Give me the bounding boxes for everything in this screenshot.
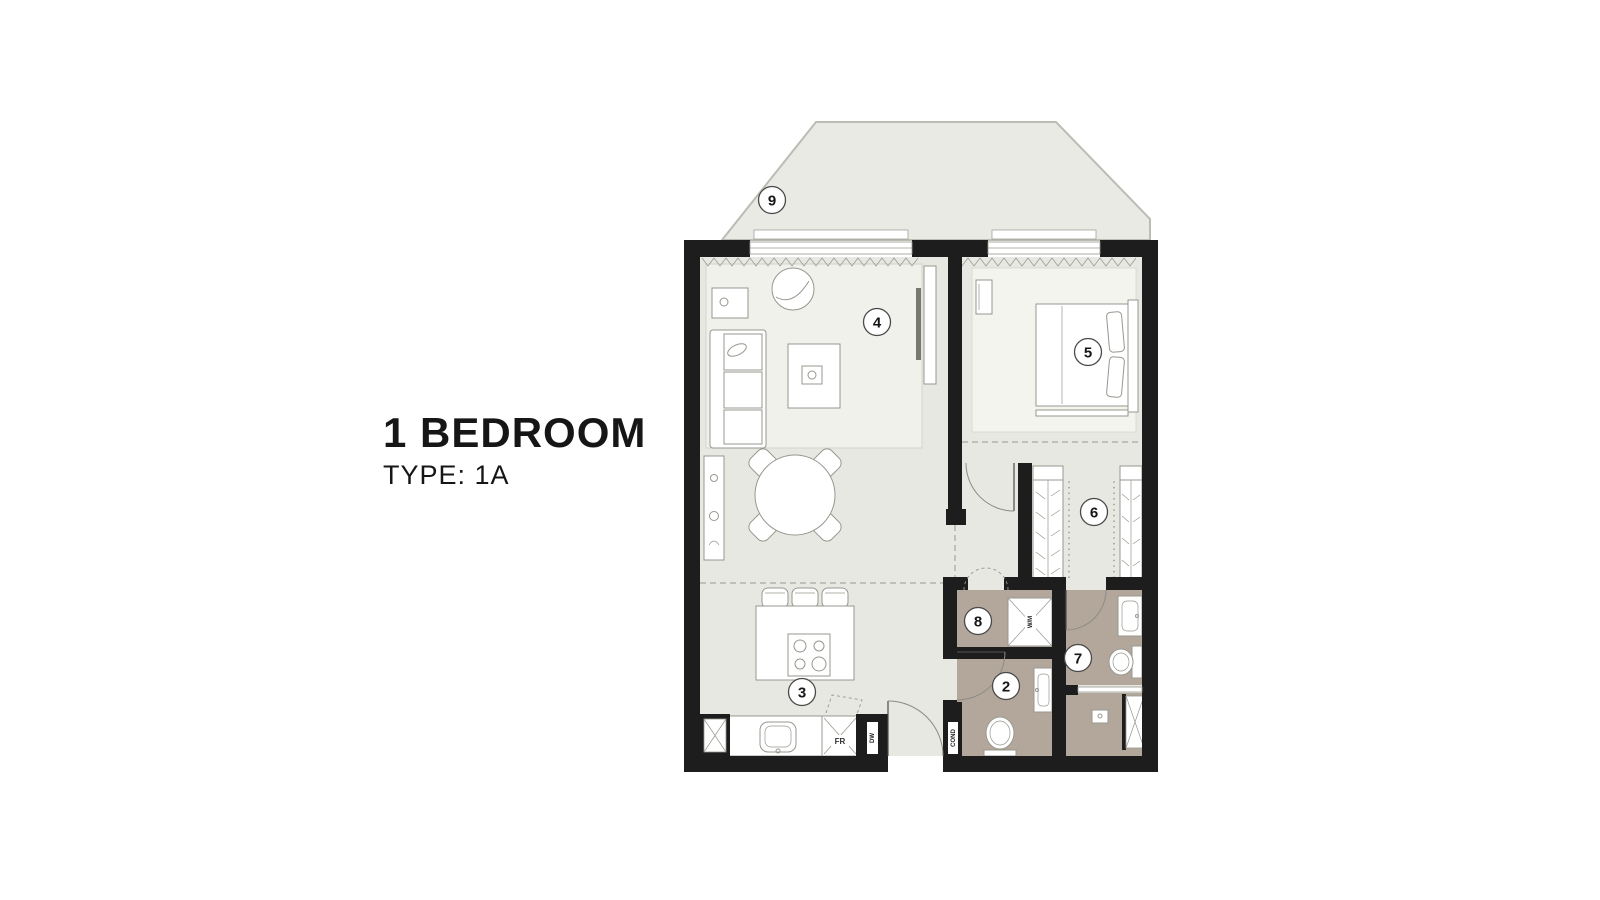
svg-text:6: 6 bbox=[1090, 505, 1098, 522]
svg-text:W/M: W/M bbox=[1028, 616, 1034, 628]
sideboard bbox=[704, 456, 724, 560]
svg-text:9: 9 bbox=[768, 193, 776, 210]
washing-machine: W/M bbox=[1008, 598, 1052, 646]
balcony-sill bbox=[992, 230, 1096, 239]
bed-bench bbox=[1036, 410, 1128, 416]
duct-shaft bbox=[1122, 694, 1144, 750]
balcony-sill bbox=[754, 230, 908, 239]
hob bbox=[788, 634, 830, 676]
shower-mixer bbox=[1092, 710, 1108, 723]
window bbox=[750, 242, 912, 254]
dining-set bbox=[746, 446, 844, 544]
room-label-bathroom: 7 bbox=[1065, 645, 1092, 672]
pillow bbox=[1106, 356, 1124, 397]
balcony-floor bbox=[722, 122, 1150, 240]
powder-toilet bbox=[984, 717, 1016, 756]
headboard bbox=[1128, 300, 1138, 412]
room-label-laundry: 8 bbox=[965, 608, 992, 635]
kitchen-island bbox=[756, 588, 854, 680]
room-label-living-dining: 4 bbox=[864, 309, 891, 336]
shower-glass-screen bbox=[1078, 687, 1142, 692]
side-table bbox=[712, 288, 748, 318]
powder-basin bbox=[1034, 668, 1052, 712]
room-label-bedroom: 5 bbox=[1075, 339, 1102, 366]
svg-text:COND: COND bbox=[951, 729, 957, 747]
room-label-powder-room: 2 bbox=[993, 673, 1020, 700]
dresser bbox=[976, 280, 992, 314]
bar-stool bbox=[762, 588, 788, 608]
svg-text:DW: DW bbox=[870, 733, 876, 743]
room-label-wardrobe: 6 bbox=[1081, 499, 1108, 526]
condenser-strip: COND bbox=[948, 722, 958, 754]
bar-stool bbox=[792, 588, 818, 608]
svg-text:3: 3 bbox=[798, 685, 806, 702]
coffee-table bbox=[788, 344, 840, 408]
svg-text:8: 8 bbox=[974, 614, 982, 631]
svg-text:7: 7 bbox=[1074, 651, 1082, 668]
kitchen-sink bbox=[760, 722, 796, 753]
fridge: FR bbox=[822, 716, 858, 756]
svg-text:5: 5 bbox=[1084, 345, 1092, 362]
svg-text:2: 2 bbox=[1002, 679, 1010, 696]
bar-stool bbox=[822, 588, 848, 608]
svg-text:4: 4 bbox=[873, 315, 882, 332]
duct-shaft bbox=[700, 714, 730, 756]
sofa bbox=[710, 330, 766, 448]
room-label-kitchen: 3 bbox=[789, 679, 816, 706]
dining-table bbox=[755, 455, 835, 535]
pillow bbox=[1106, 311, 1124, 352]
room-label-balcony: 9 bbox=[759, 187, 786, 214]
armchair bbox=[772, 268, 814, 310]
bathroom-basin bbox=[1118, 596, 1142, 636]
svg-text:FR: FR bbox=[835, 737, 846, 746]
window bbox=[988, 242, 1100, 254]
floorplan-page: 1 BEDROOM TYPE: 1A bbox=[0, 0, 1600, 900]
dishwasher-strip: DW bbox=[867, 722, 878, 754]
floorplan-drawing: FR bbox=[0, 0, 1600, 900]
